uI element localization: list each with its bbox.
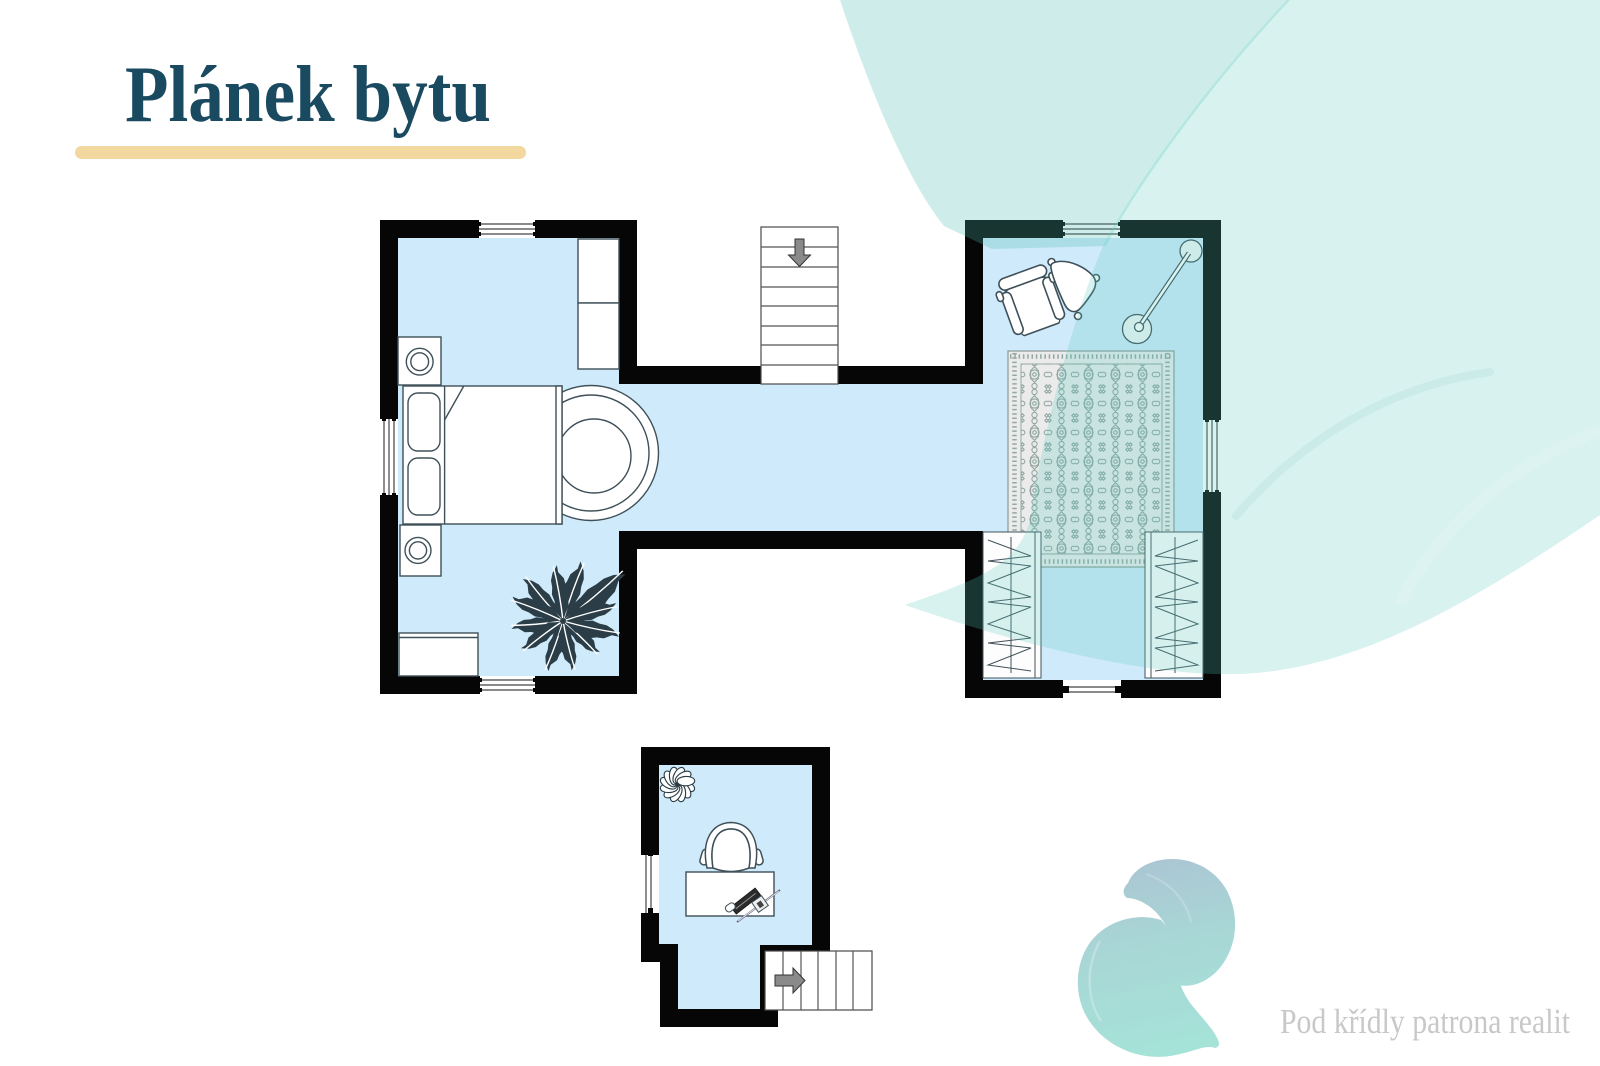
- svg-text:Plánek bytu: Plánek bytu: [125, 51, 491, 139]
- svg-text:Pod křídly patrona realit: Pod křídly patrona realit: [1280, 1003, 1570, 1041]
